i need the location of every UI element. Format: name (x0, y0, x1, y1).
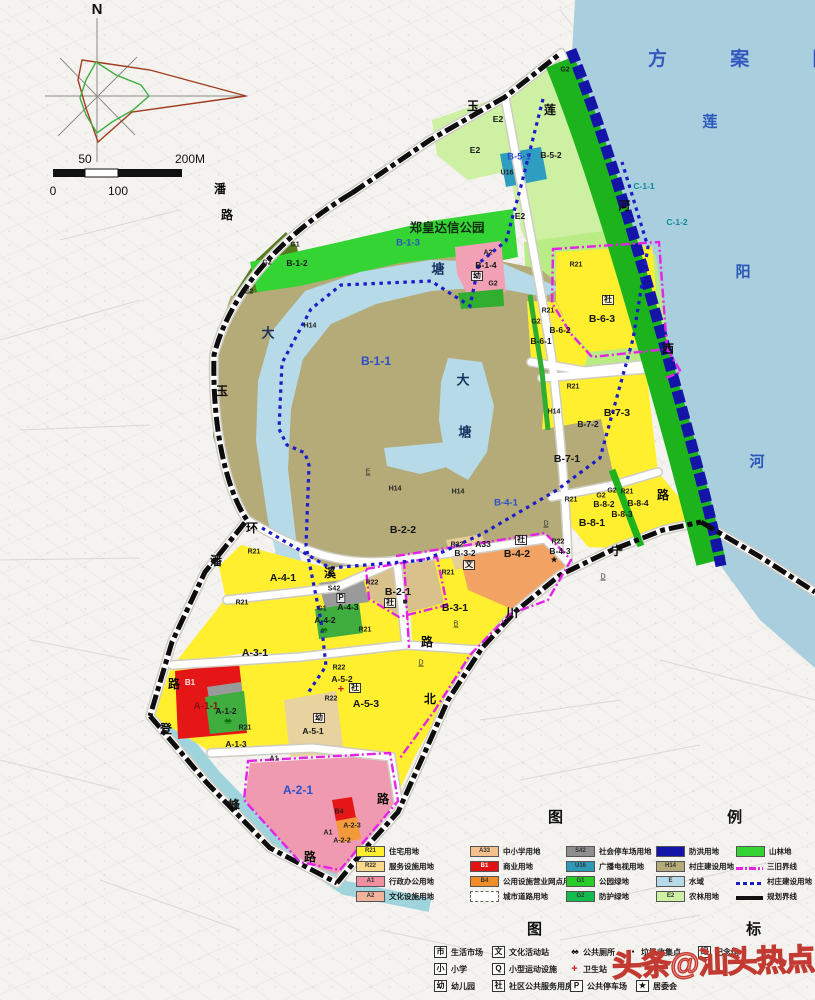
icon-legend-label: 卫生站 (583, 964, 607, 975)
幼儿园-icon: 幼 (434, 980, 447, 992)
legend-item: 防洪用地 (656, 846, 719, 857)
icon-legend-label: 小型运动设施 (509, 964, 557, 975)
legend-label: 行政办公用地 (389, 876, 434, 887)
legend-item: 三旧界线 (736, 861, 797, 872)
wind-rose: N (45, 1, 248, 162)
plan-map-stage: N 50 200M 0 100 莲阳河玉莲潘路玉环潘溪路河西路宁川北路路登峰路大… (0, 0, 815, 1000)
page-title: 方 案 图 (648, 44, 815, 71)
icon-legend-item: +卫生站 (570, 963, 607, 975)
scale-50: 50 (78, 152, 92, 166)
legend-swatch (656, 846, 685, 857)
社区公共服务用房-icon: 社 (492, 980, 505, 992)
公共停车场-icon: P (570, 980, 583, 992)
legend-item: G2防护绿地 (566, 891, 629, 902)
legend-swatch: G1 (566, 876, 595, 887)
legend-swatch (736, 896, 763, 900)
公共厕所-icon: ♠♠ (570, 947, 579, 957)
icon-legend-item: Q小型运动设施 (492, 963, 557, 975)
wind-rose-speed (80, 62, 149, 133)
legend-swatch (736, 882, 763, 885)
legend-item: 山林地 (736, 846, 792, 857)
legend-label: 服务设施用地 (389, 861, 434, 872)
legend-item: E水域 (656, 876, 704, 887)
legend-label: 商业用地 (503, 861, 533, 872)
legend-swatch: A1 (356, 876, 385, 887)
legend-label: 山林地 (769, 846, 792, 857)
legend-label: 三旧界线 (767, 861, 797, 872)
小学-icon: 小 (434, 963, 447, 975)
icon-legend-label: 小学 (451, 964, 467, 975)
legend-swatch: B4 (470, 876, 499, 887)
legend-item: R21住宅用地 (356, 846, 419, 857)
legend-swatch: G2 (566, 891, 595, 902)
legend-swatch: H14 (656, 861, 685, 872)
scale-0: 0 (50, 184, 57, 198)
小型运动设施-icon: Q (492, 963, 505, 975)
legend-item: H14村庄建设用地 (656, 861, 734, 872)
icon-legend-label: 社区公共服务用房 (509, 981, 573, 992)
legend-swatch: B1 (470, 861, 499, 872)
legend-label: 中小学用地 (503, 846, 541, 857)
icon-legend-item: 社社区公共服务用房 (492, 980, 573, 992)
watermark: 头条@汕头热点 (611, 934, 815, 985)
legend-label: 村庄建设用地 (689, 861, 734, 872)
legend-item: B1商业用地 (470, 861, 533, 872)
legend-label: 公园绿地 (599, 876, 629, 887)
legend-item: 村庄建设用地 (736, 876, 812, 887)
parcel-a23 (336, 817, 361, 843)
legend-label: 防护绿地 (599, 891, 629, 902)
scale-200m: 200M (175, 152, 205, 166)
legend-title: 图 例 (548, 806, 815, 827)
legend-label: 文化设施用地 (389, 891, 434, 902)
legend-swatch: R21 (356, 846, 385, 857)
legend-label: 住宅用地 (389, 846, 419, 857)
卫生站-icon: + (570, 964, 579, 974)
legend-label: 水域 (689, 876, 704, 887)
icon-legend-label: 生活市场 (451, 947, 483, 958)
icon-legend-item: 小小学 (434, 963, 467, 975)
legend-item: R22服务设施用地 (356, 861, 434, 872)
legend-item: E2农林用地 (656, 891, 719, 902)
icon-legend-item: 文文化活动站 (492, 946, 549, 958)
legend-item: B4公用设施营业网点用地 (470, 876, 578, 887)
文化活动站-icon: 文 (492, 946, 505, 958)
legend-swatch: U16 (566, 861, 595, 872)
parcel-a42 (315, 603, 363, 639)
legend-swatch: E (656, 876, 685, 887)
legend-swatch: A33 (470, 846, 499, 857)
icon-legend-item: ♠♠公共厕所 (570, 946, 615, 958)
icon-legend-label: 幼儿园 (451, 981, 475, 992)
north-label: N (92, 1, 103, 18)
legend-item: A1行政办公用地 (356, 876, 434, 887)
legend-item: G1公园绿地 (566, 876, 629, 887)
legend-item: A33中小学用地 (470, 846, 541, 857)
legend-label: 村庄建设用地 (767, 876, 812, 887)
icon-legend-item: 幼幼儿园 (434, 980, 475, 992)
legend-label: 社会停车场用地 (599, 846, 652, 857)
legend-item: A2文化设施用地 (356, 891, 434, 902)
scale-bar: 50 200M 0 100 (50, 152, 205, 198)
icon-legend-label: 公共厕所 (583, 947, 615, 958)
legend-swatch: S42 (566, 846, 595, 857)
legend-swatch: A2 (356, 891, 385, 902)
scale-100: 100 (108, 184, 128, 198)
legend-label: 广播电视用地 (599, 861, 644, 872)
parcel-a12 (205, 691, 248, 734)
legend-label: 防洪用地 (689, 846, 719, 857)
legend-swatch: R22 (356, 861, 385, 872)
legend-label: 城市道路用地 (503, 891, 548, 902)
icon-legend-item: 市生活市场 (434, 946, 483, 958)
legend-item: 规划界线 (736, 891, 797, 902)
wind-rose-freq (78, 60, 246, 142)
icon-legend-label: 文化活动站 (509, 947, 549, 958)
legend-item: U16广播电视用地 (566, 861, 644, 872)
legend-swatch: E2 (656, 891, 685, 902)
legend-item: 城市道路用地 (470, 891, 548, 902)
legend-swatch (736, 846, 765, 857)
legend-swatch (736, 867, 763, 870)
legend-label: 农林用地 (689, 891, 719, 902)
legend-swatch (470, 891, 499, 902)
legend-label: 规划界线 (767, 891, 797, 902)
生活市场-icon: 市 (434, 946, 447, 958)
parcel-b4-red (332, 797, 356, 821)
legend-item: S42社会停车场用地 (566, 846, 652, 857)
